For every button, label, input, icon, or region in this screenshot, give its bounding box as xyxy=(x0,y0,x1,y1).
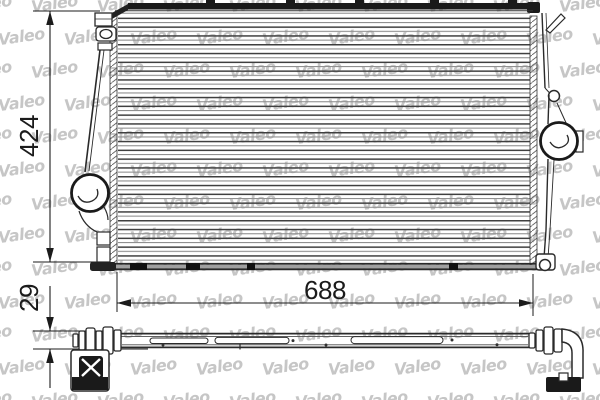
arrowhead-up xyxy=(46,349,54,363)
mount-tab xyxy=(286,0,295,3)
width-dimension-label: 688 xyxy=(304,275,346,305)
hose-rib xyxy=(79,331,85,350)
slab-dot xyxy=(292,339,295,342)
hose-rib xyxy=(114,330,121,351)
top-header-bar xyxy=(115,0,540,13)
catalog-image: ValeoValeoValeoValeoValeoValeoValeoValeo… xyxy=(0,0,600,400)
radiator-side-view xyxy=(71,327,583,392)
wall-to-port xyxy=(548,95,549,124)
leg-inner xyxy=(548,160,554,258)
slab-dot xyxy=(451,339,454,342)
right-connector xyxy=(529,327,583,392)
hose-rib xyxy=(529,333,535,348)
member-inner xyxy=(546,13,549,88)
elbow-fitting xyxy=(562,329,583,378)
top-bracket xyxy=(95,13,112,26)
lower-clip xyxy=(97,232,110,245)
bottom-bar-block xyxy=(247,263,255,270)
small-port-oval xyxy=(100,30,112,39)
outlet-port-right xyxy=(541,123,578,160)
hose-rib xyxy=(73,334,78,347)
tank-wall-outer xyxy=(85,50,100,172)
bottom-bar xyxy=(109,263,549,270)
slab-slot xyxy=(351,337,443,344)
bottom-bar-block xyxy=(449,263,458,270)
lower-wall xyxy=(79,211,97,232)
pad-notch xyxy=(559,373,568,381)
hose-rib xyxy=(96,331,102,350)
intercooler-technical-drawing: 424 688 29 xyxy=(0,0,600,400)
dimension-width-688: 688 xyxy=(117,272,533,316)
height-dimension-label: 424 xyxy=(14,115,44,157)
foot-pad xyxy=(72,377,108,390)
side-plate-right xyxy=(530,16,537,266)
bottom-bar-fill xyxy=(109,265,549,268)
lower-wall-2 xyxy=(104,207,108,220)
slab-slot xyxy=(215,337,289,343)
thickness-dimension-label: 29 xyxy=(14,284,44,312)
dimension-height-424: 424 xyxy=(14,11,109,262)
bottom-bar-block xyxy=(130,263,147,270)
leg-outer xyxy=(544,159,548,258)
lower-clip xyxy=(97,247,110,262)
core-fins xyxy=(118,17,530,263)
arrowhead-right xyxy=(519,299,533,307)
mount-tab xyxy=(430,0,439,3)
member-outer xyxy=(542,13,545,88)
right-tank xyxy=(536,13,583,271)
slab-body xyxy=(120,334,530,350)
header-end-cap xyxy=(527,2,540,13)
hose-rib xyxy=(554,329,562,352)
bottom-foot xyxy=(90,262,116,271)
bottom-bar-block xyxy=(186,263,200,270)
mount-tab xyxy=(355,0,364,3)
slab-dot xyxy=(162,344,165,347)
arrowhead-left xyxy=(117,299,131,307)
slab-dot xyxy=(325,344,328,347)
slab-slot xyxy=(150,338,208,344)
left-connector xyxy=(71,327,121,391)
hose-rib xyxy=(544,327,553,354)
small-bracket xyxy=(98,43,112,50)
arrowhead-down xyxy=(46,317,54,331)
inlet-port-left xyxy=(72,175,109,212)
slab-dot xyxy=(496,343,499,346)
arrowhead-down xyxy=(46,248,54,262)
side-plate-left xyxy=(110,16,117,264)
bolt-hole-bottom xyxy=(540,260,551,271)
radiator-front-view xyxy=(72,0,584,271)
tank-wall-inner xyxy=(89,50,104,171)
hose-rib xyxy=(536,330,543,351)
mount-tab xyxy=(206,0,215,3)
tank-top-joint xyxy=(110,4,128,19)
mount-tab xyxy=(508,0,517,3)
arrowhead-up xyxy=(46,11,54,25)
top-tab xyxy=(546,14,565,33)
header-bar xyxy=(128,3,533,10)
bolt-hole-top xyxy=(549,91,560,102)
